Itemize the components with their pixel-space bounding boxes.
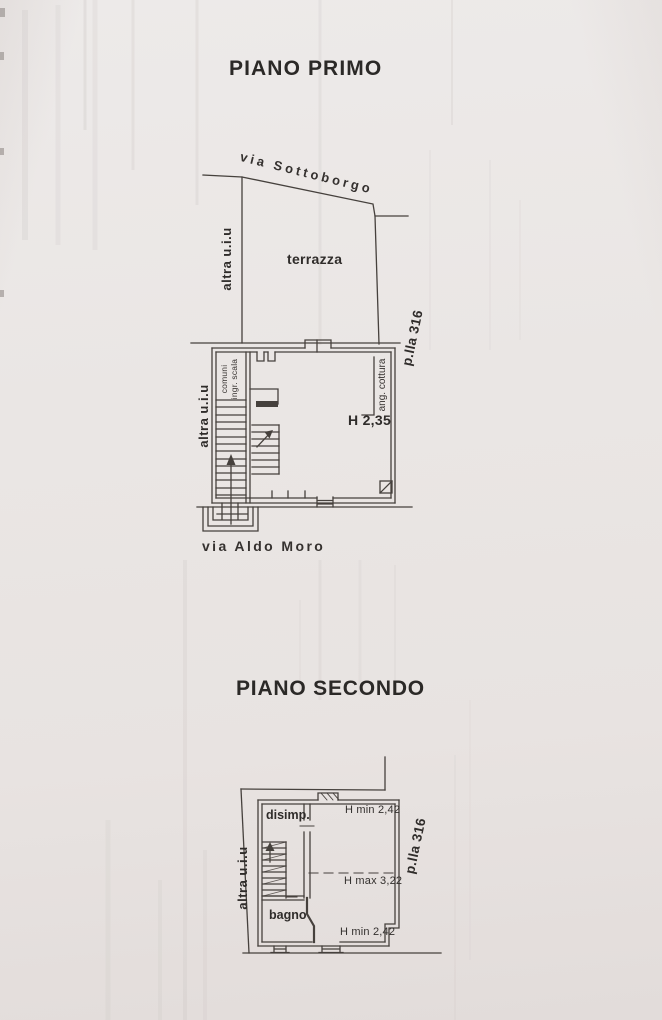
adjacent-unit-label-secondo: altra u.i.u [236, 846, 250, 909]
floor-plan-linework [0, 0, 662, 1020]
scanned-floor-plan-page: PIANO PRIMO via Sottoborgo terrazza altr… [0, 0, 662, 1020]
height-min-bottom-label: H min 2,42 [340, 927, 395, 939]
cooking-corner-label: ang. cottura [378, 359, 389, 412]
piano-secondo-arrows [266, 842, 275, 851]
common-stair-entrance-line2: comuni [219, 359, 229, 399]
hallway-room-label: disimp. [266, 809, 310, 822]
piano-secondo-title: PIANO SECONDO [236, 678, 425, 700]
scan-artifact-streaks [25, 0, 520, 1020]
scan-edge-marks [0, 8, 5, 297]
adjacent-unit-label-left: altra u.i.u [197, 384, 211, 447]
room-height-label-primo: H 2,35 [348, 413, 391, 428]
bathroom-room-label: bagno [269, 909, 307, 922]
piano-primo-arrows [227, 401, 279, 465]
common-stair-entrance-line1: ingr. scala [229, 359, 239, 399]
adjacent-unit-label-top: altra u.i.u [220, 227, 234, 290]
street-name-via-aldo-moro: via Aldo Moro [202, 539, 325, 554]
height-min-top-label: H min 2,42 [345, 805, 400, 817]
height-max-label: H max 3,22 [344, 876, 402, 888]
common-stair-entrance-label: comuni ingr. scala [219, 359, 239, 399]
piano-primo-title: PIANO PRIMO [229, 58, 382, 80]
terrace-room-label: terrazza [287, 252, 342, 267]
